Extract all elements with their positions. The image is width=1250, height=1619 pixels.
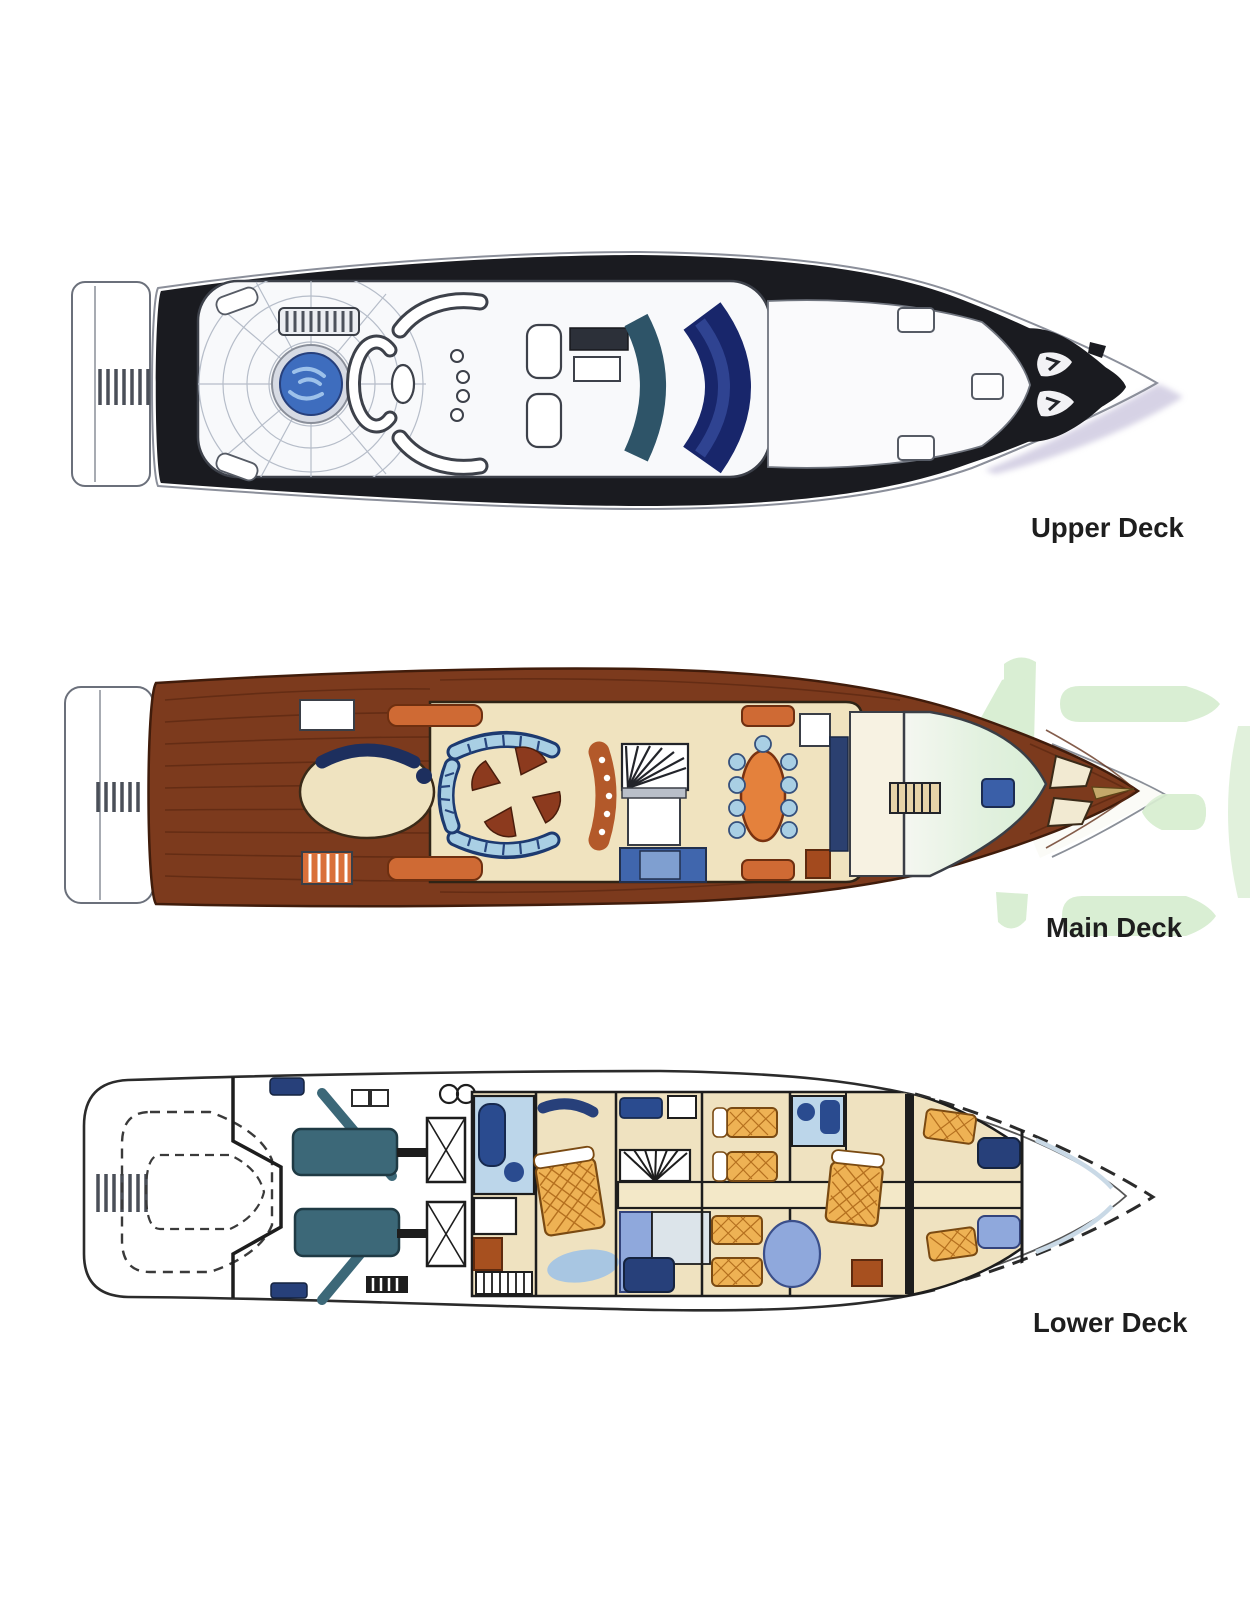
svg-text:Lower Deck: Lower Deck (1033, 1307, 1188, 1338)
svg-text:Main Deck: Main Deck (1046, 912, 1183, 943)
svg-text:Upper Deck: Upper Deck (1031, 512, 1185, 543)
